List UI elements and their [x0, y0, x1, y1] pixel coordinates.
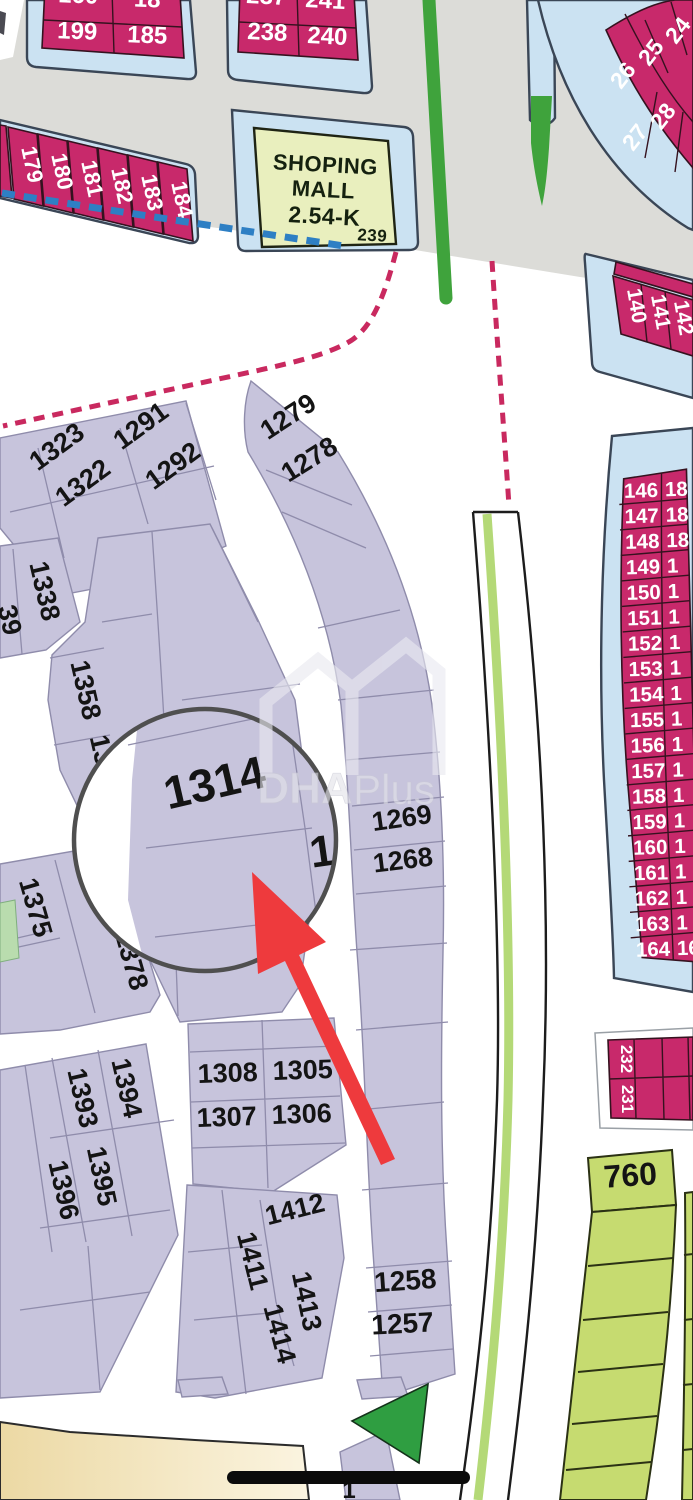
plot-map: 160 18 199 185 237 241 238 240 SHOPING M… [0, 0, 693, 1500]
shopping-mall-parcel [254, 128, 396, 247]
pink-dashed-boundary [3, 252, 396, 426]
shopping-mall-block: SHOPING MALL 2.54-K 239 [232, 110, 418, 251]
wedge-plot [178, 1377, 228, 1397]
pink-dashed-boundary-2 [492, 261, 509, 506]
block-232-231: 232 231 [595, 1028, 693, 1130]
screenshot-stage: 160 18 199 185 237 241 238 240 SHOPING M… [0, 0, 693, 1500]
block-140-142: 140 141 142 [585, 254, 693, 398]
block-top-mid: 237 241 238 240 [227, 0, 372, 93]
block-1394-1396: 1394 1393 1395 1396 [0, 1044, 178, 1398]
block-1412-1414: 1412 1411 1413 1414 [176, 1185, 344, 1398]
tan-parcel [0, 1422, 309, 1500]
block-1308-1306: 1308 1305 1307 1306 [188, 1018, 346, 1192]
home-indicator[interactable] [227, 1471, 470, 1484]
road-strip [460, 512, 546, 1500]
block-146-164: 1461814718148181491150115111521153115411… [601, 428, 693, 992]
block-760 [560, 1150, 693, 1500]
block-top-left: 160 18 199 185 [27, 0, 196, 79]
wedge-plot [357, 1377, 408, 1399]
